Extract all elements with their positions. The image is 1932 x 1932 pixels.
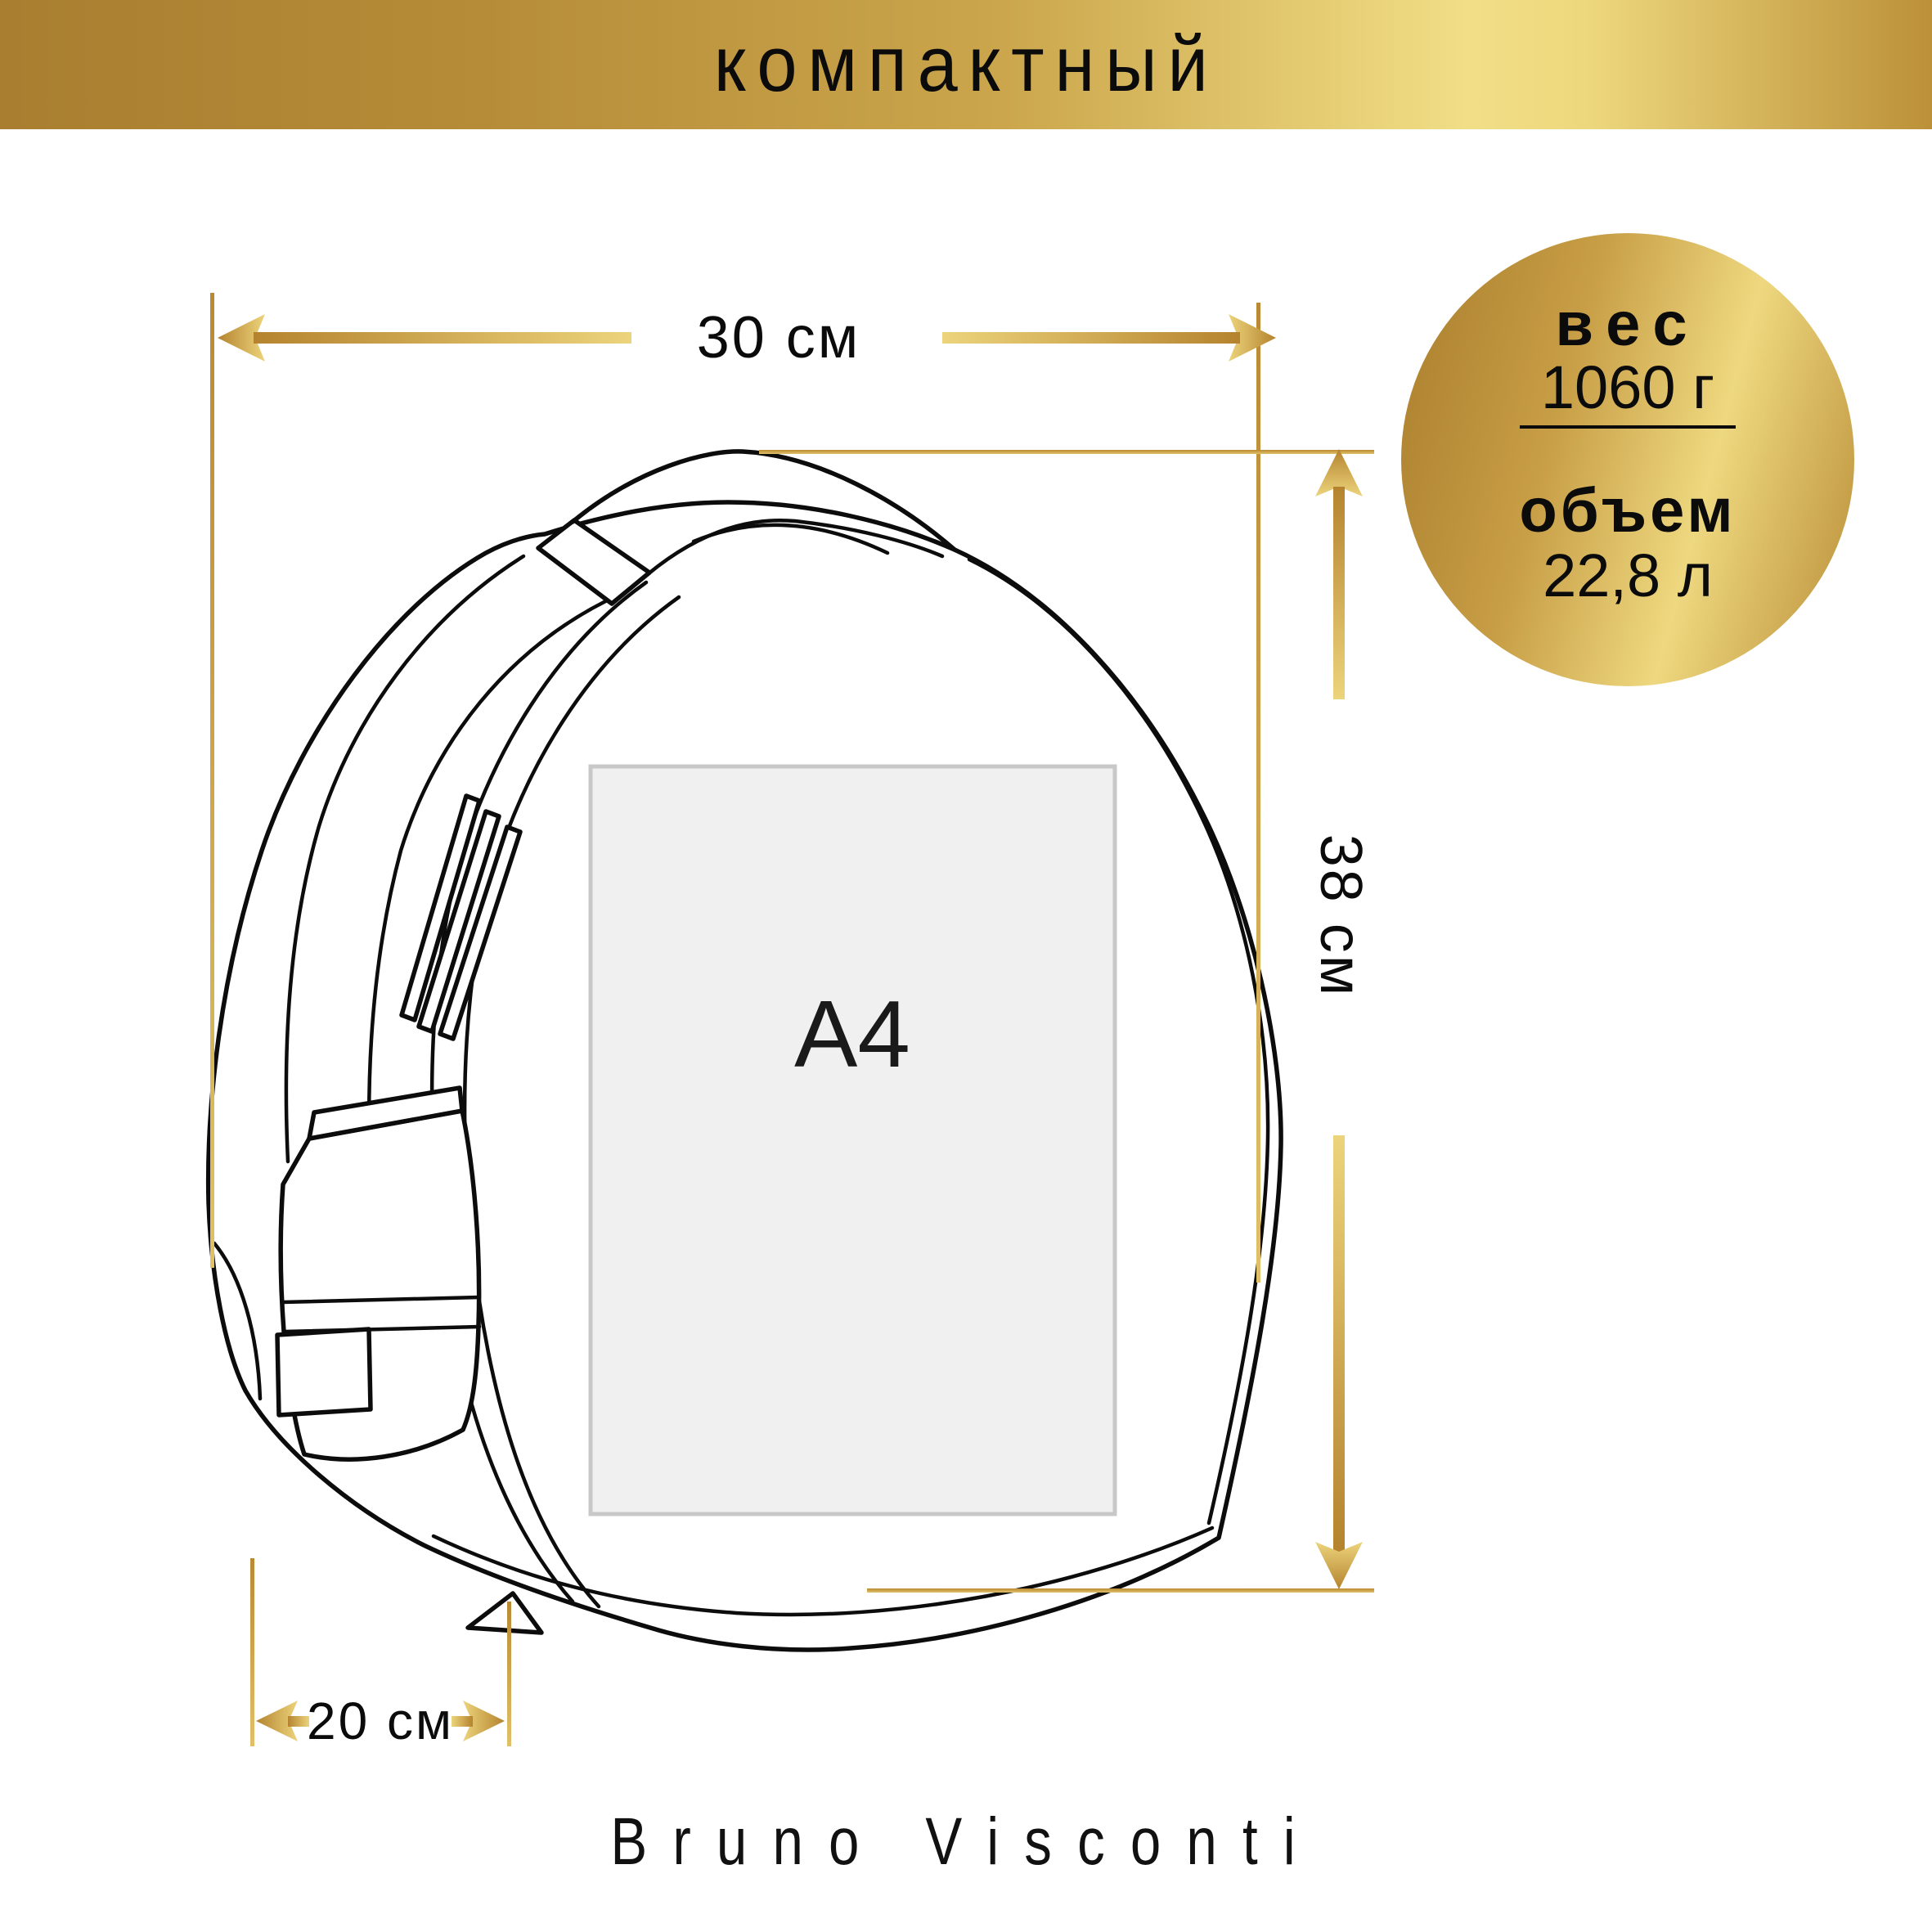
arrow-up-shaft [1333, 487, 1345, 699]
height-extension-bottom [867, 1588, 1374, 1593]
product-infographic: компактный [0, 0, 1932, 1932]
depth-arrow-right-shaft [452, 1716, 473, 1727]
width-extension-right [1256, 303, 1260, 1283]
arrow-down-shaft [1333, 1135, 1345, 1552]
volume-label: объем [1401, 475, 1854, 546]
brand: Bruno Visconti [0, 1804, 1932, 1880]
a4-label: A4 [794, 981, 910, 1087]
pocket-patch [277, 1329, 371, 1415]
height-label: 38 см [1308, 834, 1373, 999]
brand-label: Bruno Visconti [611, 1804, 1322, 1880]
depth-label: 20 см [307, 1692, 454, 1750]
volume-value: 22,8 л [1401, 541, 1854, 610]
a4-sheet [591, 766, 1115, 1514]
width-extension-left [210, 293, 214, 1268]
height-extension-top [759, 450, 1374, 454]
badge-divider [1520, 425, 1736, 429]
width-label: 30 см [697, 305, 861, 371]
depth-extension-left [250, 1558, 254, 1746]
backpack-illustration: A4 [209, 452, 1281, 1650]
depth-extension-right [507, 1602, 511, 1746]
zipper-pull [468, 1593, 541, 1633]
arrow-left-shaft [254, 332, 631, 344]
weight-label: вес [1401, 289, 1854, 360]
spec-badge: вес 1060 г объем 22,8 л [1401, 233, 1854, 686]
arrow-right-shaft [942, 332, 1240, 344]
depth-dimension: 20 см [250, 1558, 511, 1750]
weight-value: 1060 г [1401, 353, 1854, 422]
